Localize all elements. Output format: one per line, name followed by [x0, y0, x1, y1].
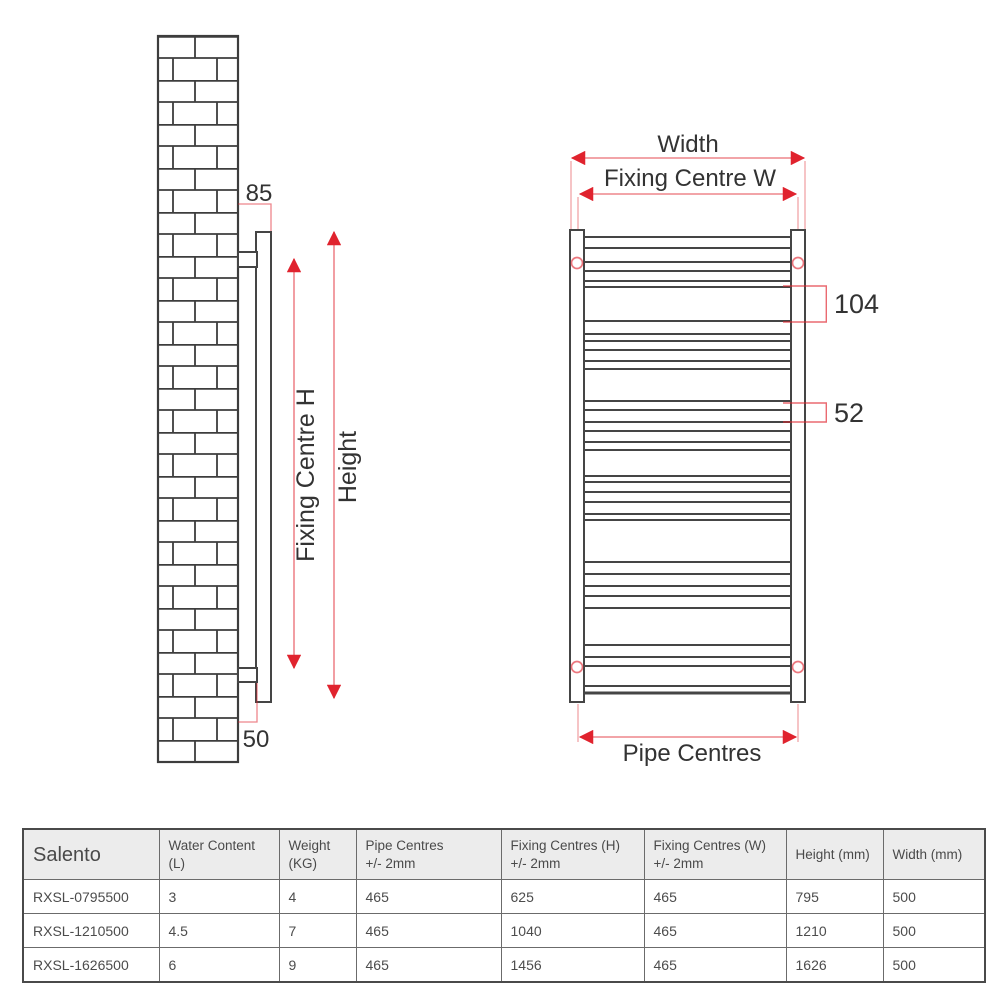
fixing-centre-w-label: Fixing Centre W — [604, 165, 776, 192]
table-cell: 9 — [279, 948, 356, 983]
radiator-dimension-sheet: 85 50 Fixing Centre H Height Width — [0, 0, 1005, 1005]
table-header-water-content: Water Content(L) — [159, 829, 279, 880]
table-row: RXSL-1210500 4.5 7 465 1040 465 1210 500 — [23, 914, 985, 948]
table-cell: 500 — [883, 880, 985, 914]
table-header-row: Salento Water Content(L) Weight(KG) Pipe… — [23, 829, 985, 880]
model-code-cell: RXSL-0795500 — [23, 880, 159, 914]
table-header-width: Width (mm) — [883, 829, 985, 880]
table-cell: 1456 — [501, 948, 644, 983]
table-cell: 465 — [356, 880, 501, 914]
height-label: Height — [334, 431, 362, 503]
rung-gap-large-value: 104 — [834, 289, 879, 319]
table-row: RXSL-0795500 3 4 465 625 465 795 500 — [23, 880, 985, 914]
side-view: 85 50 Fixing Centre H Height — [158, 36, 362, 762]
model-code-cell: RXSL-1626500 — [23, 948, 159, 983]
rung-gap-small-value: 52 — [834, 398, 864, 428]
table-cell: 4.5 — [159, 914, 279, 948]
table-cell: 500 — [883, 948, 985, 983]
model-code-cell: RXSL-1210500 — [23, 914, 159, 948]
table-cell: 7 — [279, 914, 356, 948]
dimension-line-wall-offset-bottom — [238, 683, 257, 722]
table-cell: 465 — [644, 880, 786, 914]
dimension-value-wall-offset-top: 85 — [246, 180, 273, 207]
radiator-rungs — [584, 237, 791, 693]
table-cell: 465 — [356, 948, 501, 983]
radiator-side-panel — [256, 232, 271, 702]
table-cell: 1626 — [786, 948, 883, 983]
table-header-fixing-centres-w: Fixing Centres (W)+/- 2mm — [644, 829, 786, 880]
table-cell: 795 — [786, 880, 883, 914]
table-cell: 625 — [501, 880, 644, 914]
table-cell: 500 — [883, 914, 985, 948]
dimension-diagram: 85 50 Fixing Centre H Height Width — [0, 0, 1005, 815]
radiator-rail-left — [570, 230, 584, 702]
brick-wall — [158, 36, 238, 762]
fixing-centre-w-extension-lines — [578, 197, 798, 229]
table-header-weight: Weight(KG) — [279, 829, 356, 880]
table-header-height: Height (mm) — [786, 829, 883, 880]
front-view: Width Fixing Centre W 104 52 Pipe Centre… — [570, 131, 879, 767]
table-header-fixing-centres-h: Fixing Centres (H)+/- 2mm — [501, 829, 644, 880]
table-cell: 465 — [644, 948, 786, 983]
table-cell: 6 — [159, 948, 279, 983]
radiator-rail-right — [791, 230, 805, 702]
table-row: RXSL-1626500 6 9 465 1456 465 1626 500 — [23, 948, 985, 983]
table-header-pipe-centres: Pipe Centres+/- 2mm — [356, 829, 501, 880]
mounting-bracket-bottom — [238, 668, 257, 682]
table-header-product: Salento — [23, 829, 159, 880]
fixing-centre-h-label: Fixing Centre H — [292, 388, 320, 562]
spec-table: Salento Water Content(L) Weight(KG) Pipe… — [22, 828, 986, 983]
width-label: Width — [657, 131, 718, 158]
table-cell: 1040 — [501, 914, 644, 948]
table-cell: 465 — [356, 914, 501, 948]
table-cell: 4 — [279, 880, 356, 914]
dimension-value-wall-offset-bottom: 50 — [243, 726, 270, 753]
pipe-centres-label: Pipe Centres — [623, 740, 762, 767]
table-cell: 3 — [159, 880, 279, 914]
mounting-bracket-top — [238, 252, 257, 267]
table-cell: 465 — [644, 914, 786, 948]
dimension-line-wall-offset-top — [238, 204, 271, 231]
table-cell: 1210 — [786, 914, 883, 948]
